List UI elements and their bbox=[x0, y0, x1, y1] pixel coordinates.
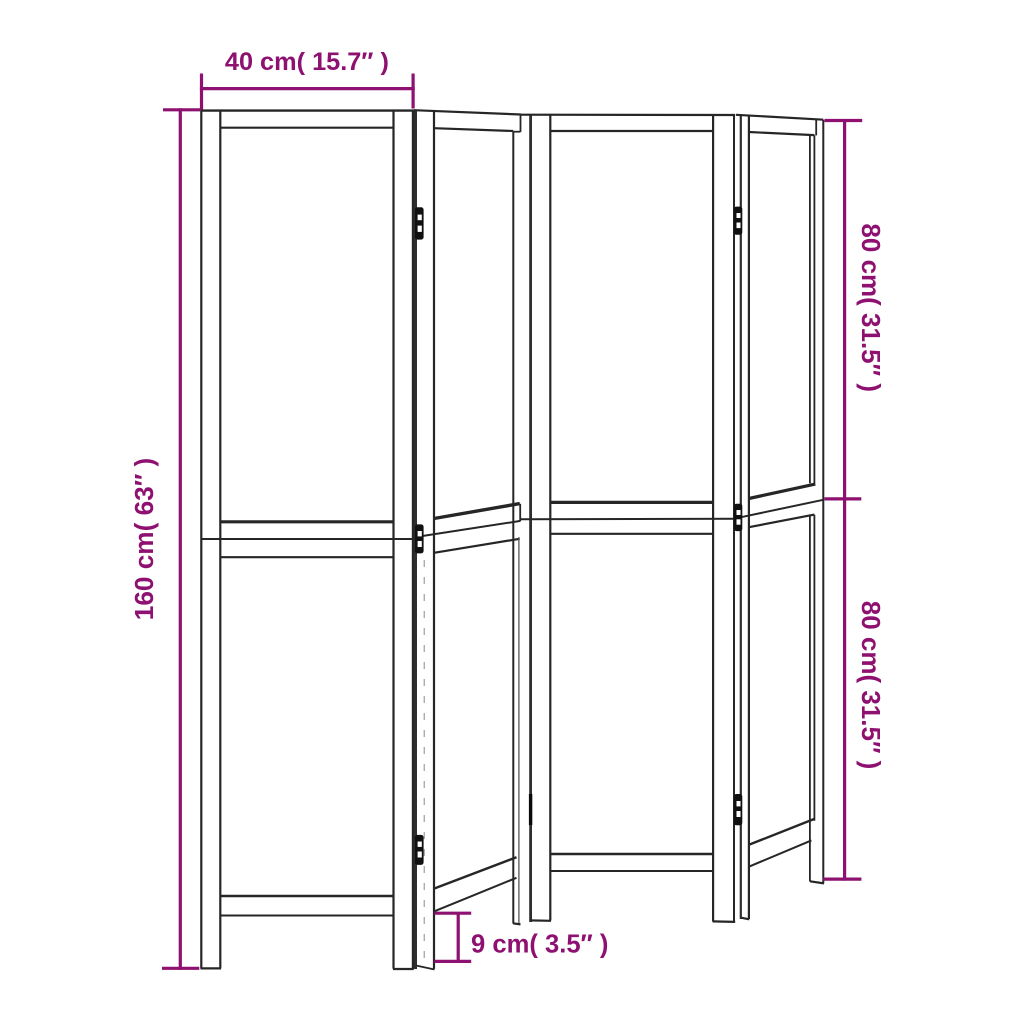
svg-text:160 cm( 63″ ): 160 cm( 63″ ) bbox=[129, 458, 159, 620]
svg-text:80 cm( 31.5″ ): 80 cm( 31.5″ ) bbox=[856, 223, 886, 392]
svg-text:40 cm( 15.7″ ): 40 cm( 15.7″ ) bbox=[225, 48, 389, 76]
svg-text:9 cm( 3.5″ ): 9 cm( 3.5″ ) bbox=[471, 931, 608, 959]
svg-text:80 cm( 31.5″ ): 80 cm( 31.5″ ) bbox=[856, 601, 886, 770]
